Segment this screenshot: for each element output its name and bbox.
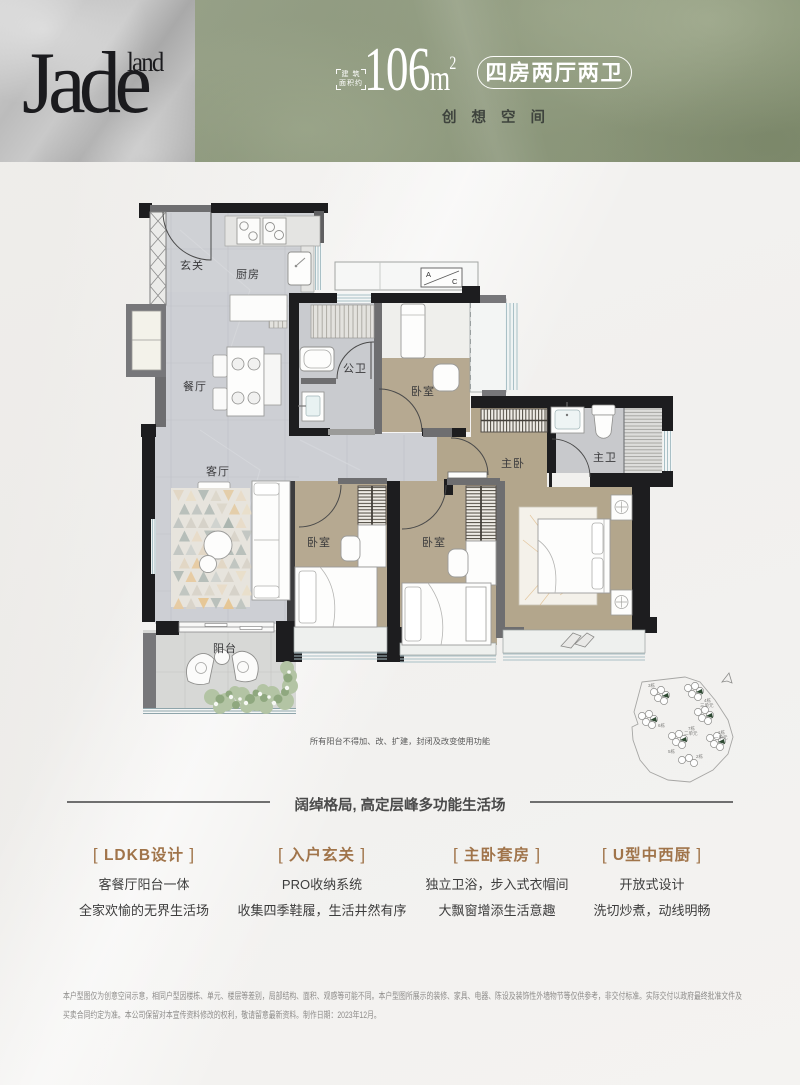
svg-text:C: C [452, 277, 458, 286]
svg-text:A: A [426, 270, 431, 279]
svg-text:玄关: 玄关 [180, 258, 204, 272]
svg-text:厨房: 厨房 [236, 268, 260, 281]
svg-text:主卫: 主卫 [593, 451, 617, 464]
svg-text:所有阳台不得加、改、扩建，封闭及改变使用功能: 所有阳台不得加、改、扩建，封闭及改变使用功能 [310, 736, 490, 746]
svg-text:公卫: 公卫 [343, 363, 367, 375]
svg-text:阳台: 阳台 [213, 641, 237, 655]
svg-text:1栋一单元: 1栋一单元 [714, 729, 728, 741]
svg-text:7栋二单元: 7栋二单元 [684, 725, 698, 737]
svg-text:6栋: 6栋 [658, 722, 666, 729]
svg-text:卧室: 卧室 [307, 535, 331, 549]
svg-text:4栋三单元: 4栋三单元 [700, 697, 714, 709]
svg-text:卧室: 卧室 [422, 535, 446, 549]
svg-text:客厅: 客厅 [206, 464, 230, 478]
svg-text:5栋: 5栋 [668, 748, 676, 755]
svg-text:主卧: 主卧 [501, 457, 525, 470]
svg-text:3栋: 3栋 [648, 682, 656, 689]
svg-text:卧室: 卧室 [411, 384, 435, 398]
svg-text:2栋: 2栋 [696, 753, 704, 760]
svg-text:餐厅: 餐厅 [183, 379, 207, 393]
